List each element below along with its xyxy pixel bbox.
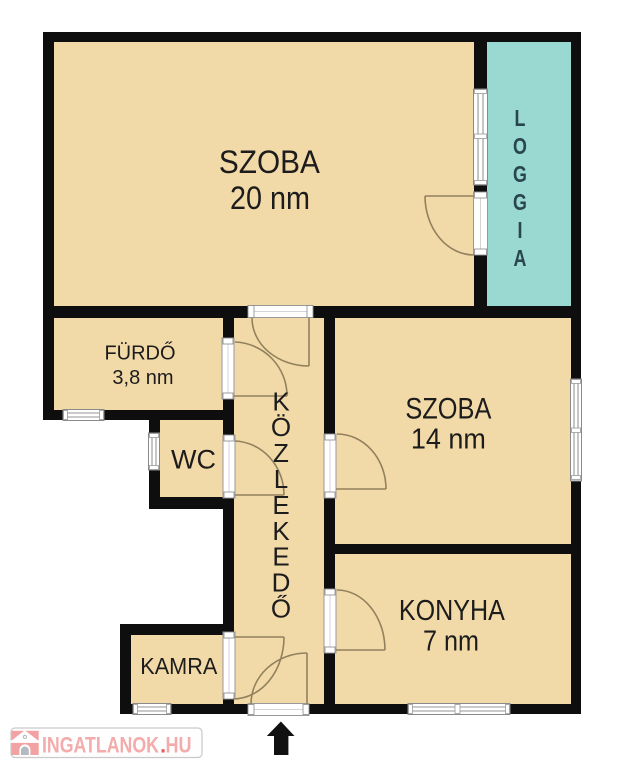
- svg-text:Ő: Ő: [271, 594, 291, 624]
- svg-text:FÜRDŐ: FÜRDŐ: [104, 342, 175, 365]
- svg-text:SZOBA: SZOBA: [405, 393, 491, 426]
- svg-text:G: G: [513, 162, 527, 188]
- svg-text:L: L: [515, 106, 526, 132]
- svg-text:14 nm: 14 nm: [411, 423, 486, 455]
- svg-text:I: I: [518, 218, 523, 244]
- svg-text:A: A: [514, 246, 527, 272]
- svg-text:KONYHA: KONYHA: [399, 595, 505, 627]
- svg-text:SZOBA: SZOBA: [219, 144, 321, 180]
- svg-text:WC: WC: [171, 444, 216, 474]
- svg-text:KAMRA: KAMRA: [140, 653, 218, 679]
- svg-text:7 nm: 7 nm: [423, 626, 479, 658]
- svg-text:INGATLANOK: INGATLANOK: [42, 732, 159, 757]
- svg-text:G: G: [513, 190, 527, 216]
- svg-text:20 nm: 20 nm: [230, 180, 310, 216]
- svg-text:O: O: [513, 134, 527, 160]
- svg-text:HU: HU: [166, 732, 192, 757]
- svg-text:3,8 nm: 3,8 nm: [112, 367, 173, 389]
